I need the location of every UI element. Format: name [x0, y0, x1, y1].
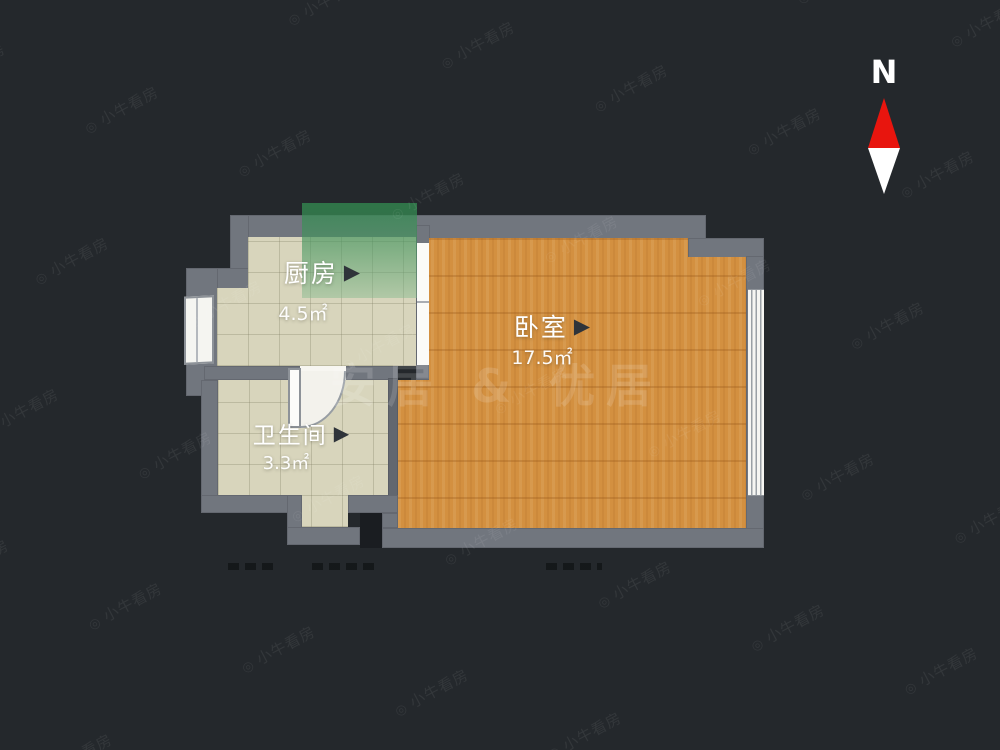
- bathroom-arrow-icon: ▶: [334, 421, 349, 445]
- brand-watermark: ◎小牛看房: [284, 0, 366, 30]
- brand-watermark: ◎小牛看房: [34, 729, 116, 750]
- partition-window: [417, 243, 429, 365]
- kitchen-arrow-icon: ▶: [344, 260, 360, 284]
- camera-icon: ◎: [902, 679, 920, 698]
- brand-watermark: ◎小牛看房: [234, 124, 316, 181]
- wall-left-lower: [201, 380, 218, 513]
- compass-needle-icon: [864, 96, 904, 196]
- brand-watermark: ◎小牛看房: [31, 232, 113, 289]
- wall-bottom-patch: [382, 513, 398, 528]
- brand-watermark: ◎小牛看房: [946, 0, 1000, 51]
- brand-watermark: ◎小牛看房: [84, 578, 166, 635]
- brand-watermark-text: 小牛看房: [916, 644, 981, 690]
- brand-watermark-text: 小牛看房: [250, 126, 315, 172]
- brand-watermark: ◎小牛看房: [950, 491, 1000, 548]
- brand-watermark-text: 小牛看房: [763, 601, 828, 647]
- brand-watermark-text: 小牛看房: [966, 493, 1000, 539]
- brand-watermark: ◎小牛看房: [590, 59, 672, 116]
- brand-watermark-text: 小牛看房: [913, 147, 978, 193]
- brand-watermark-text: 小牛看房: [759, 104, 824, 150]
- kitchen-label: 厨房▶: [262, 254, 382, 290]
- window-mullion: [196, 298, 198, 362]
- camera-icon: ◎: [439, 53, 457, 72]
- camera-icon: ◎: [596, 593, 614, 612]
- brand-watermark-text: 小牛看房: [0, 385, 62, 431]
- brand-watermark-text: 小牛看房: [813, 450, 878, 496]
- camera-icon: ◎: [86, 614, 104, 633]
- camera-icon: ◎: [236, 161, 254, 180]
- dimension-dashes: [312, 563, 374, 570]
- bedroom-arrow-icon: ▶: [574, 314, 590, 338]
- brand-watermark: ◎小牛看房: [743, 103, 825, 160]
- camera-icon: ◎: [799, 485, 817, 504]
- brand-watermark: ◎小牛看房: [593, 556, 675, 613]
- wall-gap-notch: [360, 513, 382, 548]
- brand-watermark: ◎小牛看房: [81, 81, 163, 138]
- brand-watermark: ◎小牛看房: [0, 383, 62, 440]
- brand-watermark-text: 小牛看房: [50, 730, 115, 750]
- brand-watermark: ◎小牛看房: [900, 642, 982, 699]
- partition-window-divider: [417, 301, 429, 303]
- bedroom-name: 卧室: [514, 308, 568, 344]
- kitchen-name: 厨房: [284, 254, 338, 290]
- brand-watermark: ◎小牛看房: [437, 16, 519, 73]
- bathroom-area-value: 3.3㎡: [244, 449, 328, 475]
- kitchen-area-value: 4.5㎡: [258, 299, 348, 326]
- camera-icon: ◎: [849, 334, 867, 353]
- center-watermark-text: 安居 & 优居: [330, 350, 663, 416]
- brand-watermark: ◎小牛看房: [747, 599, 829, 656]
- brand-watermark-text: 小牛看房: [0, 536, 12, 582]
- camera-icon: ◎: [0, 420, 1, 439]
- camera-icon: ◎: [745, 139, 763, 158]
- dimension-dashes: [546, 563, 602, 570]
- bathroom-label: 卫生间▶: [238, 416, 364, 450]
- brand-watermark-text: 小牛看房: [100, 579, 165, 625]
- brand-watermark: ◎小牛看房: [390, 664, 472, 721]
- brand-watermark-text: 小牛看房: [863, 299, 928, 345]
- camera-icon: ◎: [393, 701, 411, 720]
- camera-icon: ◎: [240, 658, 258, 677]
- camera-icon: ◎: [592, 96, 610, 115]
- bathroom-name: 卫生间: [253, 416, 328, 450]
- right-window: [748, 289, 764, 496]
- compass-north-label: N: [858, 56, 910, 88]
- brand-watermark-text: 小牛看房: [962, 0, 1000, 42]
- camera-icon: ◎: [949, 31, 967, 50]
- brand-watermark: ◎小牛看房: [846, 297, 928, 354]
- camera-icon: ◎: [286, 10, 304, 29]
- brand-watermark: ◎小牛看房: [0, 534, 13, 591]
- brand-watermark-text: 小牛看房: [47, 234, 112, 280]
- brand-watermark: ◎小牛看房: [797, 448, 879, 505]
- camera-icon: ◎: [952, 528, 970, 547]
- camera-icon: ◎: [546, 744, 564, 750]
- brand-watermark-text: 小牛看房: [407, 666, 472, 712]
- camera-icon: ◎: [33, 269, 51, 288]
- bedroom-label: 卧室▶: [496, 308, 608, 344]
- wall-bottom: [382, 528, 764, 548]
- brand-watermark-text: 小牛看房: [300, 0, 365, 21]
- brand-watermark: ◎小牛看房: [237, 621, 319, 678]
- camera-icon: ◎: [795, 0, 813, 7]
- brand-watermark-text: 小牛看房: [0, 40, 9, 86]
- brand-watermark: ◎小牛看房: [793, 0, 875, 8]
- wall-bath-bottom-right: [348, 495, 398, 513]
- wall-topright-step: [688, 238, 764, 258]
- camera-icon: ◎: [443, 550, 461, 569]
- wall-notch-bottom: [287, 527, 360, 545]
- dimension-dashes: [228, 563, 274, 570]
- brand-watermark: ◎小牛看房: [0, 38, 9, 95]
- brand-watermark-text: 小牛看房: [610, 558, 675, 604]
- brand-watermark-text: 小牛看房: [606, 61, 671, 107]
- camera-icon: ◎: [136, 463, 154, 482]
- brand-watermark-text: 小牛看房: [97, 83, 162, 129]
- left-window: [184, 295, 214, 365]
- brand-watermark-text: 小牛看房: [560, 709, 625, 750]
- brand-watermark: ◎小牛看房: [544, 707, 626, 750]
- brand-watermark-text: 小牛看房: [453, 18, 518, 64]
- floor-plan-image: 厨房▶ 4.5㎡ 卫生间▶ 3.3㎡ 卧室▶ 17.5㎡ 安居 & 优居 N ◎…: [0, 0, 1000, 750]
- camera-icon: ◎: [83, 118, 101, 137]
- brand-watermark-text: 小牛看房: [253, 622, 318, 668]
- camera-icon: ◎: [749, 636, 767, 655]
- compass: N: [858, 56, 910, 200]
